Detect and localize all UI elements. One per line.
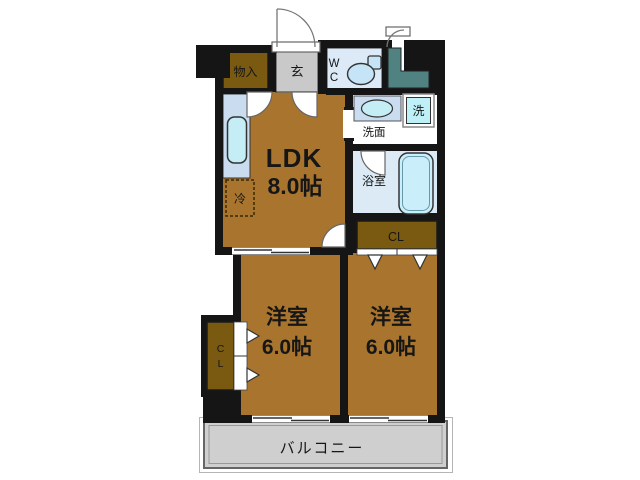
ldk-name-label: LDK: [266, 143, 322, 173]
washroom-doorway-gap: [343, 110, 355, 138]
entrance-storage-label: 物入: [233, 65, 257, 79]
wc-label-line1: W: [329, 58, 340, 70]
wall-left-lower-upper: [233, 251, 241, 325]
entrance-door-leaf: [272, 42, 320, 52]
washroom-doorway-tick-top: [344, 107, 354, 110]
bedroom-right-size-label: 6.0帖: [366, 336, 416, 359]
wc-label-line2: C: [330, 72, 338, 84]
ldk-size-label: 8.0帖: [268, 173, 323, 199]
vanity-basin: [362, 100, 393, 117]
wall-left-upper: [215, 52, 223, 253]
closet-left-box: [207, 322, 234, 390]
wall-between-bedrooms: [340, 247, 348, 420]
entrance-door-arc: [277, 9, 315, 47]
bedroom-left-name-label: 洋室: [266, 305, 308, 329]
balcony-label: バルコニー: [280, 440, 365, 457]
wall-bottomleft-block: [203, 388, 241, 423]
vanity-sink: [354, 96, 401, 121]
washroom-doorway: [343, 107, 355, 141]
sliding-door: [232, 248, 310, 255]
washroom-label: 洗面: [363, 126, 386, 139]
refrigerator-label: 冷: [234, 192, 246, 206]
toilet-bowl: [348, 64, 375, 85]
wall-right: [437, 40, 445, 423]
closet-main-label: CL: [388, 230, 404, 244]
bathroom-label: 浴室: [362, 173, 386, 188]
kitchen-sink: [228, 117, 247, 163]
wall-top-left: [196, 45, 277, 53]
wall-wc-utility: [382, 45, 388, 94]
floor-plan-drawing: 冷 物入 玄 W C 洗面 洗 浴室 LDK 8.0帖 CL C: [0, 0, 640, 480]
closet-left-label-line2: L: [218, 358, 224, 370]
window-left-band: [252, 416, 330, 423]
closet-left-label-line1: C: [217, 343, 225, 355]
washer-label: 洗: [412, 104, 424, 118]
wall-top-right: [318, 40, 392, 48]
sliding-door-band: [232, 248, 310, 255]
bathtub: [399, 153, 433, 214]
entrance-label: 玄: [290, 64, 303, 79]
floor-plan-page: 冷 物入 玄 W C 洗面 洗 浴室 LDK 8.0帖 CL C: [0, 0, 640, 480]
wall-washroom-bath: [352, 144, 437, 151]
bathtub-outer: [399, 153, 433, 214]
window-right-band: [349, 416, 428, 423]
bedroom-right-name-label: 洋室: [370, 305, 412, 329]
bedroom-left-size-label: 6.0帖: [262, 336, 312, 359]
washroom-doorway-tick-bottom: [344, 138, 354, 141]
